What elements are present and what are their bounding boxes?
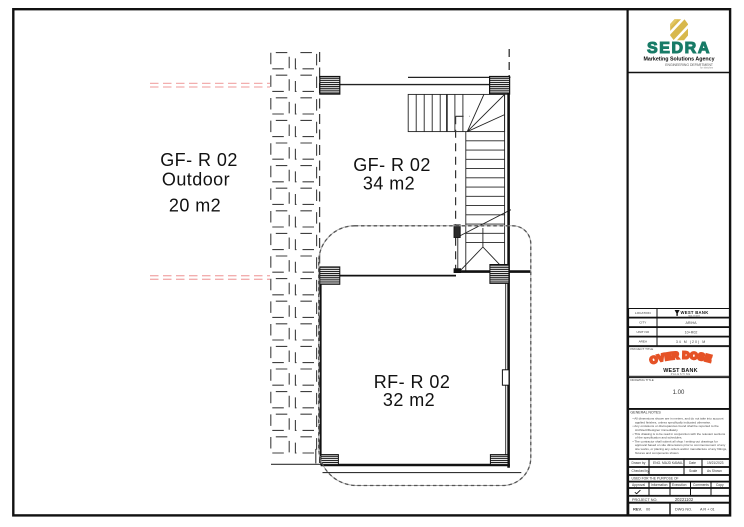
svg-text:00: 00 bbox=[646, 507, 650, 511]
svg-text:Drawn by: Drawn by bbox=[632, 461, 646, 465]
svg-text:CITY: CITY bbox=[639, 321, 646, 325]
svg-text:for sketches: for sketches bbox=[700, 67, 714, 70]
svg-text:ARIHA: ARIHA bbox=[686, 321, 698, 325]
svg-text:A R + 01: A R + 01 bbox=[700, 508, 715, 512]
svg-text:GF- R 02: GF- R 02 bbox=[160, 150, 238, 170]
svg-text:DRAWING TITLE: DRAWING TITLE bbox=[630, 378, 653, 382]
svg-text:1.00: 1.00 bbox=[673, 390, 685, 396]
svg-text:Information: Information bbox=[651, 483, 668, 487]
svg-text:PROJECT TITLE: PROJECT TITLE bbox=[630, 347, 653, 351]
svg-text:Scale: Scale bbox=[689, 469, 697, 473]
svg-text:19/21/2023: 19/21/2023 bbox=[707, 461, 724, 465]
svg-text:P A L E S T I N E: P A L E S T I N E bbox=[671, 372, 691, 376]
svg-text:USED FOR THE PURPOSE OF: USED FOR THE PURPOSE OF bbox=[632, 477, 679, 481]
svg-text:DWG NO.: DWG NO. bbox=[675, 508, 692, 512]
svg-text:34 m2: 34 m2 bbox=[363, 174, 415, 194]
svg-text:REAL ESTATE: REAL ESTATE bbox=[688, 315, 701, 318]
svg-text:34 M (20) M: 34 M (20) M bbox=[676, 340, 706, 344]
svg-text:10+R02: 10+R02 bbox=[685, 330, 698, 334]
svg-text:REV.: REV. bbox=[633, 506, 642, 511]
svg-text:UNIT NO: UNIT NO bbox=[636, 330, 649, 334]
svg-text:Comments: Comments bbox=[693, 483, 709, 487]
svg-text:Outdoor: Outdoor bbox=[162, 170, 230, 190]
svg-text:RF- R 02: RF- R 02 bbox=[374, 372, 451, 392]
svg-text:20 m2: 20 m2 bbox=[169, 196, 221, 216]
svg-text:20221102: 20221102 bbox=[675, 497, 694, 502]
svg-text:GENERAL NOTES: GENERAL NOTES bbox=[630, 411, 661, 415]
svg-text:32 m2: 32 m2 bbox=[383, 390, 435, 410]
svg-text:PROJECT NO.: PROJECT NO. bbox=[632, 498, 657, 502]
svg-text:Approval: Approval bbox=[632, 483, 645, 487]
svg-text:Marketing Solutions Agency: Marketing Solutions Agency bbox=[643, 57, 714, 63]
svg-text:fixtures and components shown: fixtures and components shown bbox=[635, 451, 679, 455]
svg-text:OVER DOSE: OVER DOSE bbox=[649, 350, 713, 367]
svg-text:GF- R 02: GF- R 02 bbox=[353, 155, 431, 175]
svg-text:AREA: AREA bbox=[639, 340, 648, 344]
svg-text:Copy: Copy bbox=[716, 483, 724, 487]
svg-text:Execution: Execution bbox=[672, 483, 687, 487]
svg-text:As Shown: As Shown bbox=[707, 469, 722, 473]
svg-text:WEST BANK: WEST BANK bbox=[680, 310, 708, 315]
svg-text:LOCATION: LOCATION bbox=[635, 311, 651, 315]
svg-text:Checked by: Checked by bbox=[632, 469, 650, 473]
svg-text:Date: Date bbox=[689, 461, 696, 465]
svg-text:SEDRA: SEDRA bbox=[647, 40, 711, 57]
svg-text:ENG. MAJD KAMAL: ENG. MAJD KAMAL bbox=[653, 461, 683, 465]
